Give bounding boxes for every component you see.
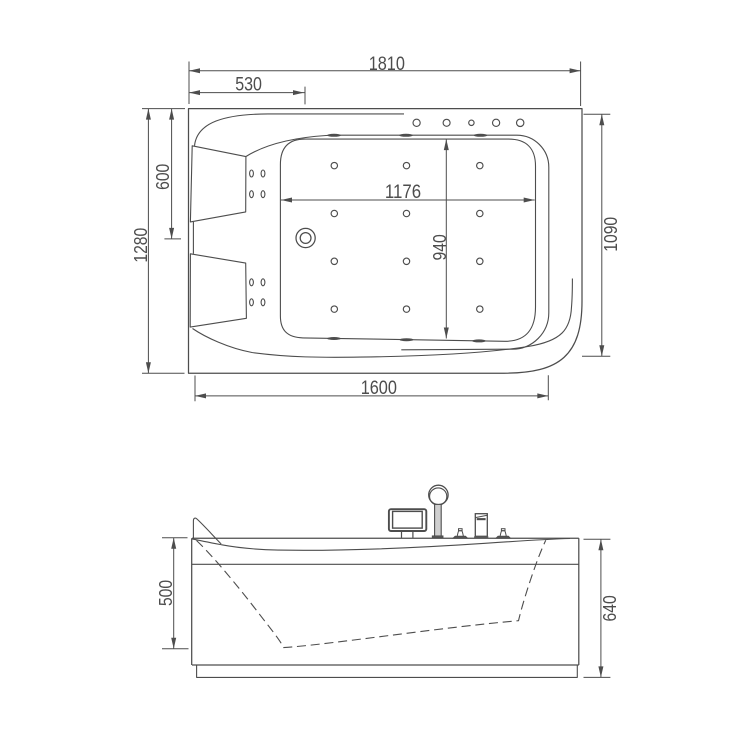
svg-text:1810: 1810 <box>369 53 405 75</box>
svg-text:600: 600 <box>152 164 173 190</box>
svg-text:1280: 1280 <box>130 228 151 263</box>
svg-text:640: 640 <box>599 595 620 621</box>
svg-text:1090: 1090 <box>600 217 621 252</box>
svg-text:1600: 1600 <box>361 377 397 399</box>
svg-text:500: 500 <box>155 580 176 606</box>
svg-text:940: 940 <box>429 234 450 260</box>
svg-text:1176: 1176 <box>385 181 421 203</box>
svg-text:530: 530 <box>235 74 262 96</box>
